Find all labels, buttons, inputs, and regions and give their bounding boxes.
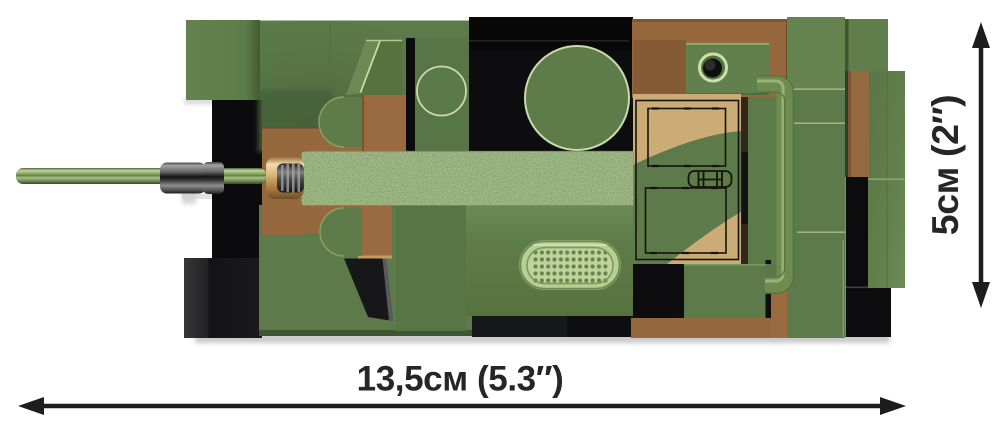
svg-text:5см (2″): 5см (2″): [924, 95, 966, 235]
svg-text:13,5см (5.3″): 13,5см (5.3″): [357, 360, 564, 399]
